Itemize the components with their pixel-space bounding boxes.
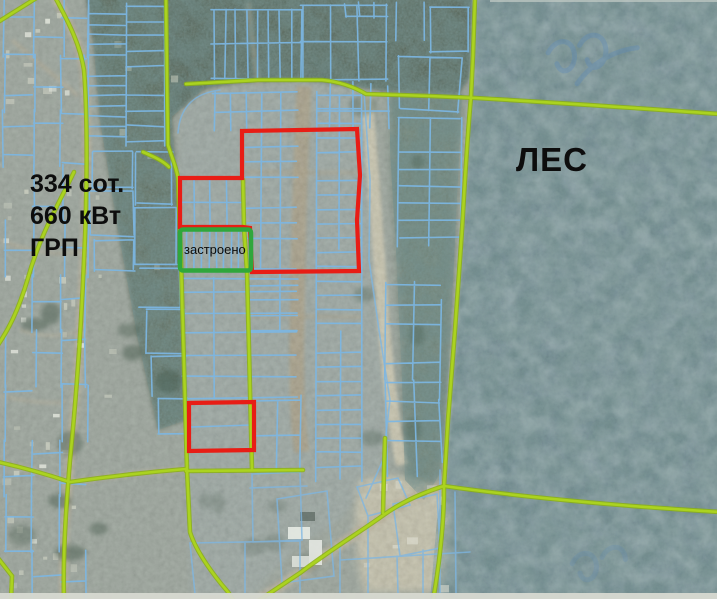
map-window: 334 сот. 660 кВт ГРП ЛЕС застроено (0, 0, 717, 599)
label-forest: ЛЕС (516, 141, 588, 178)
bottom-edge-bar (0, 593, 717, 599)
label-power: 660 кВт (30, 202, 121, 230)
top-edge-artifact (490, 0, 717, 2)
label-grp: ГРП (30, 234, 79, 262)
map-canvas[interactable]: 334 сот. 660 кВт ГРП ЛЕС застроено (0, 0, 717, 599)
label-built: застроено (184, 242, 246, 257)
label-area: 334 сот. (30, 170, 124, 198)
